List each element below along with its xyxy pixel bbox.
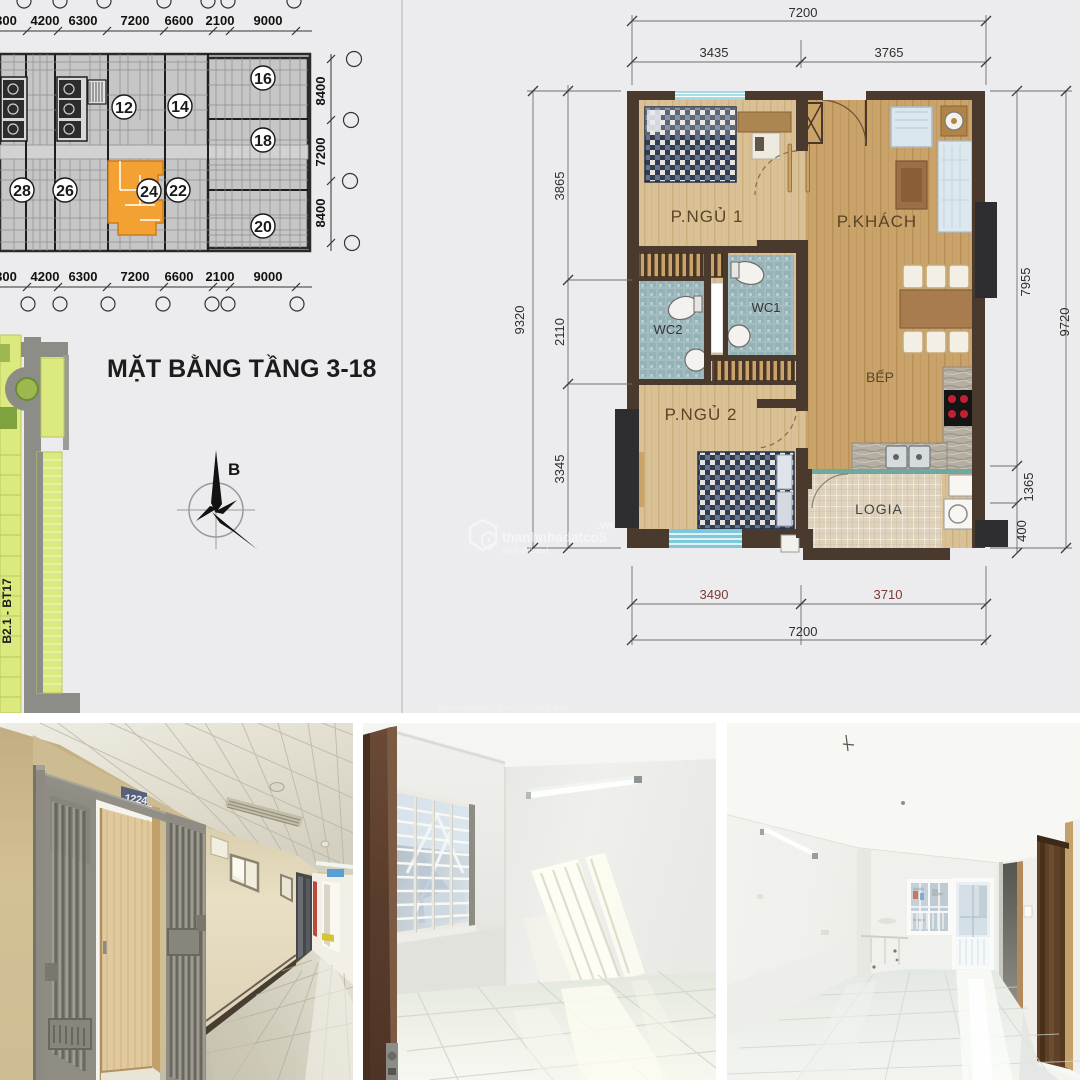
svg-text:B: B (228, 460, 240, 479)
svg-text:28: 28 (13, 183, 31, 200)
svg-text:P.NGỦ 1: P.NGỦ 1 (671, 207, 744, 226)
svg-text:8400: 8400 (313, 77, 328, 106)
svg-text:thanhnhadatco5.vn — GoldLand: thanhnhadatco5.vn — GoldLand (438, 703, 568, 713)
svg-text:7200: 7200 (121, 13, 150, 28)
svg-text:P.NGỦ 2: P.NGỦ 2 (665, 405, 738, 424)
svg-text:3490: 3490 (700, 587, 729, 602)
svg-text:7200: 7200 (121, 269, 150, 284)
svg-text:14: 14 (171, 99, 189, 116)
svg-text:4200: 4200 (31, 269, 60, 284)
svg-text:2110: 2110 (552, 318, 567, 346)
svg-text:3710: 3710 (874, 587, 903, 602)
svg-text:300: 300 (0, 269, 17, 284)
svg-text:2100: 2100 (206, 13, 235, 28)
svg-text:WC2: WC2 (654, 322, 683, 337)
svg-text:6600: 6600 (165, 13, 194, 28)
svg-text:3345: 3345 (552, 455, 567, 484)
svg-text:9000: 9000 (254, 13, 283, 28)
svg-text:3865: 3865 (552, 172, 567, 201)
svg-text:400: 400 (1014, 520, 1029, 542)
svg-text:BẾP: BẾP (866, 369, 894, 385)
svg-text:3765: 3765 (875, 45, 904, 60)
svg-text:9720: 9720 (1057, 308, 1072, 337)
svg-text:18: 18 (254, 133, 272, 150)
svg-text:6600: 6600 (165, 269, 194, 284)
svg-text:26: 26 (56, 183, 74, 200)
svg-text:7200: 7200 (789, 624, 818, 639)
svg-text:6300: 6300 (69, 269, 98, 284)
svg-text:12: 12 (115, 100, 133, 117)
svg-text:7955: 7955 (1018, 268, 1033, 297)
svg-text:24: 24 (140, 184, 158, 201)
svg-text:B2.1 - BT17: B2.1 - BT17 (0, 578, 14, 644)
svg-text:LOGIA: LOGIA (855, 501, 903, 517)
svg-text:thanhnhadatco5: thanhnhadatco5 (502, 530, 607, 545)
svg-text:P.KHÁCH: P.KHÁCH (837, 212, 917, 231)
svg-text:1365: 1365 (1021, 473, 1036, 502)
svg-text:by GoldLand: by GoldLand (503, 546, 548, 555)
svg-text:7200: 7200 (313, 138, 328, 167)
svg-text:2100: 2100 (206, 269, 235, 284)
svg-text:20: 20 (254, 219, 272, 236)
svg-text:3435: 3435 (700, 45, 729, 60)
svg-text:300: 300 (0, 13, 17, 28)
svg-text:16: 16 (254, 71, 272, 88)
svg-text:4200: 4200 (31, 13, 60, 28)
svg-text:7200: 7200 (789, 5, 818, 20)
svg-text:9000: 9000 (254, 269, 283, 284)
svg-text:9320: 9320 (512, 306, 527, 335)
svg-text:8400: 8400 (313, 199, 328, 228)
svg-text:.vn: .vn (597, 520, 613, 532)
svg-text:22: 22 (169, 183, 187, 200)
svg-text:MẶT BẰNG TẦNG 3-18: MẶT BẰNG TẦNG 3-18 (107, 354, 377, 383)
svg-text:6300: 6300 (69, 13, 98, 28)
svg-text:WC1: WC1 (752, 300, 781, 315)
